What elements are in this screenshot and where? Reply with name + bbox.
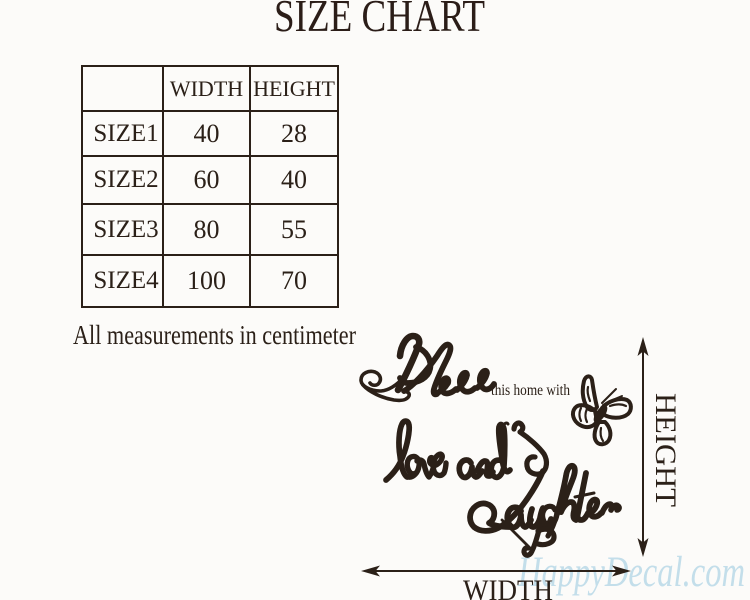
svg-text:All measurements in centimeter: All measurements in centimeter <box>73 320 356 350</box>
svg-text:WIDTH: WIDTH <box>463 574 553 600</box>
svg-text:this home with: this home with <box>491 382 570 399</box>
svg-text:SIZE CHART: SIZE CHART <box>274 0 485 41</box>
svg-text:HEIGHT: HEIGHT <box>649 393 682 507</box>
